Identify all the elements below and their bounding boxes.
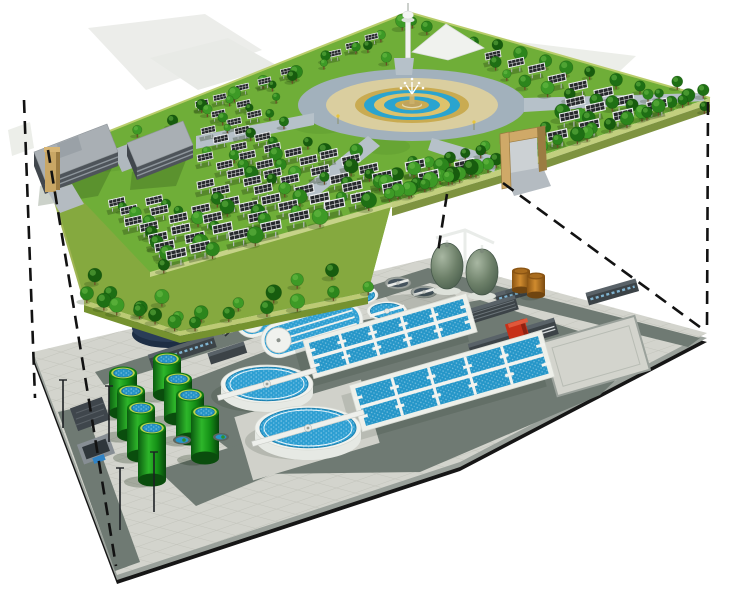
tower-top bbox=[403, 11, 414, 19]
tree-shadow bbox=[202, 255, 217, 260]
canopy-highlight bbox=[491, 57, 496, 62]
lamp-light bbox=[336, 114, 339, 117]
canopy-highlight bbox=[423, 22, 428, 27]
canopy-highlight bbox=[288, 72, 293, 77]
canopy-highlight bbox=[611, 75, 617, 81]
canopy-highlight bbox=[246, 167, 252, 173]
canopy-highlight bbox=[627, 100, 633, 106]
tree-shadow bbox=[145, 321, 159, 326]
tree-shadow bbox=[381, 199, 392, 203]
canopy-highlight bbox=[591, 95, 597, 101]
canopy-highlight bbox=[636, 82, 641, 87]
canopy-highlight bbox=[90, 270, 96, 276]
tree-shadow bbox=[130, 316, 143, 321]
canopy-highlight bbox=[337, 193, 342, 198]
tree-shadow bbox=[322, 276, 336, 281]
tree-shadow bbox=[601, 129, 613, 133]
canopy-highlight bbox=[667, 97, 672, 102]
canopy-highlight bbox=[170, 316, 176, 322]
canopy-highlight bbox=[363, 194, 370, 201]
canopy-highlight bbox=[364, 42, 368, 46]
tree-shadow bbox=[263, 118, 272, 121]
small-tank bbox=[213, 433, 229, 441]
tree-shadow bbox=[417, 189, 428, 193]
canopy-highlight bbox=[191, 318, 196, 323]
canopy-highlight bbox=[234, 299, 239, 304]
canopy-highlight bbox=[268, 286, 275, 293]
canopy-highlight bbox=[643, 108, 648, 113]
canopy-highlight bbox=[515, 48, 521, 54]
canopy-highlight bbox=[351, 145, 357, 151]
canopy-highlight bbox=[230, 88, 236, 94]
canopy-highlight bbox=[222, 201, 229, 208]
tree-shadow bbox=[418, 32, 430, 36]
scene-svg bbox=[0, 0, 740, 589]
canopy-highlight bbox=[321, 60, 324, 63]
canopy-highlight bbox=[267, 110, 271, 114]
canopy-highlight bbox=[203, 148, 207, 152]
canopy-highlight bbox=[329, 287, 334, 292]
canopy-highlight bbox=[656, 90, 660, 94]
projection-line-right-vertical bbox=[707, 102, 708, 329]
tree-shadow bbox=[549, 145, 560, 149]
canopy-highlight bbox=[106, 288, 112, 294]
canopy-highlight bbox=[477, 146, 482, 151]
tree-shadow bbox=[392, 27, 406, 32]
canopy-highlight bbox=[194, 236, 201, 243]
fountain-mist bbox=[400, 87, 403, 90]
gate-pillar-side bbox=[56, 152, 60, 190]
canopy-highlight bbox=[280, 118, 284, 122]
canopy-highlight bbox=[156, 291, 162, 297]
canopy-highlight bbox=[134, 126, 138, 130]
canopy-highlight bbox=[239, 160, 244, 165]
canopy-highlight bbox=[273, 94, 276, 97]
tree-shadow bbox=[277, 126, 287, 130]
canopy-highlight bbox=[343, 178, 348, 183]
canopy-highlight bbox=[421, 180, 426, 185]
canopy-highlight bbox=[385, 189, 390, 194]
path-north bbox=[394, 58, 414, 75]
canopy-highlight bbox=[444, 172, 449, 177]
canopy-highlight bbox=[446, 153, 451, 158]
canopy-highlight bbox=[98, 295, 104, 301]
tree-shadow bbox=[500, 78, 509, 81]
tree-shadow bbox=[675, 105, 685, 109]
tree-shadow bbox=[84, 281, 99, 286]
canopy-highlight bbox=[224, 308, 229, 313]
canopy-highlight bbox=[162, 200, 166, 204]
canopy-highlight bbox=[225, 125, 228, 128]
tree-shadow bbox=[361, 50, 371, 54]
canopy-highlight bbox=[269, 138, 273, 142]
canopy-highlight bbox=[259, 214, 265, 220]
canopy-highlight bbox=[150, 309, 156, 315]
canopy-highlight bbox=[213, 193, 219, 199]
canopy-highlight bbox=[253, 206, 259, 212]
canopy-highlight bbox=[392, 169, 398, 175]
canopy-highlight bbox=[290, 167, 296, 173]
canopy-highlight bbox=[653, 100, 659, 106]
canopy-highlight bbox=[82, 288, 88, 294]
tree-shadow bbox=[224, 104, 232, 107]
canopy-highlight bbox=[566, 89, 571, 94]
tree-shadow bbox=[76, 299, 90, 304]
canopy-highlight bbox=[322, 52, 326, 56]
tree-shadow bbox=[270, 101, 278, 104]
canopy-highlight bbox=[111, 299, 118, 306]
canopy-highlight bbox=[249, 228, 256, 235]
tree-shadow bbox=[164, 328, 178, 333]
canopy-highlight bbox=[465, 161, 472, 168]
canopy-highlight bbox=[364, 283, 369, 288]
tree-shadow bbox=[318, 67, 326, 70]
canopy-highlight bbox=[230, 151, 235, 156]
tree-shadow bbox=[215, 122, 225, 126]
water bbox=[216, 435, 227, 440]
canopy-highlight bbox=[135, 305, 140, 310]
tree-shadow bbox=[378, 62, 389, 66]
fountain-mist bbox=[422, 87, 425, 90]
tree-shadow bbox=[266, 89, 274, 92]
canopy-highlight bbox=[295, 191, 301, 197]
lamp-light bbox=[472, 120, 475, 123]
tree-shadow bbox=[537, 94, 551, 99]
canopy-highlight bbox=[607, 97, 613, 103]
canopy-highlight bbox=[204, 105, 208, 109]
canopy-highlight bbox=[584, 112, 590, 118]
canopy-highlight bbox=[520, 76, 525, 81]
canopy-highlight bbox=[262, 302, 268, 308]
tree-shadow bbox=[220, 319, 233, 324]
canopy-highlight bbox=[382, 53, 387, 58]
canopy-highlight bbox=[314, 210, 321, 217]
canopy-highlight bbox=[276, 160, 281, 165]
canopy-highlight bbox=[321, 173, 325, 177]
fountain-mist bbox=[404, 82, 407, 85]
canopy-highlight bbox=[557, 105, 564, 112]
tree-shadow bbox=[473, 155, 484, 159]
canopy-highlight bbox=[147, 227, 152, 232]
canopy-highlight bbox=[366, 170, 370, 174]
canopy-highlight bbox=[327, 265, 333, 271]
central-plaza bbox=[298, 69, 526, 141]
process-tank-dark bbox=[385, 277, 411, 289]
tree-shadow bbox=[694, 96, 706, 100]
canopy-highlight bbox=[119, 203, 123, 207]
canopy-highlight bbox=[292, 206, 297, 211]
canopy-highlight bbox=[271, 148, 277, 154]
canopy-highlight bbox=[353, 43, 357, 47]
tree-shadow bbox=[284, 81, 295, 85]
tree-shadow bbox=[130, 135, 140, 139]
water bbox=[176, 437, 189, 443]
gate-cap bbox=[44, 147, 60, 152]
tree-shadow bbox=[360, 292, 371, 296]
fountain-mist bbox=[418, 82, 421, 85]
tree-shadow bbox=[257, 313, 271, 318]
cutaway-illustration bbox=[0, 0, 740, 589]
canopy-highlight bbox=[561, 62, 567, 68]
tree-shadow bbox=[324, 298, 337, 303]
plant-building bbox=[585, 279, 639, 306]
canopy-highlight bbox=[409, 163, 415, 169]
tree-shadow bbox=[515, 87, 528, 92]
tree-shadow bbox=[616, 124, 630, 129]
tree-shadow bbox=[186, 328, 198, 332]
tree-shadow bbox=[349, 52, 359, 55]
canopy-highlight bbox=[247, 129, 252, 134]
canopy-highlight bbox=[152, 237, 158, 243]
canopy-highlight bbox=[292, 274, 298, 280]
tree-shadow bbox=[582, 77, 593, 81]
tree-shadow bbox=[301, 147, 311, 151]
canopy-highlight bbox=[644, 90, 649, 95]
tree-shadow bbox=[243, 138, 254, 142]
canopy-highlight bbox=[622, 113, 628, 119]
canopy-highlight bbox=[160, 260, 165, 265]
canopy-highlight bbox=[435, 159, 442, 166]
canopy-highlight bbox=[246, 104, 250, 108]
egg-digester bbox=[466, 249, 498, 295]
canopy-highlight bbox=[175, 207, 179, 211]
tree-shadow bbox=[697, 111, 707, 115]
canopy-highlight bbox=[462, 149, 466, 153]
canopy-highlight bbox=[227, 96, 230, 99]
canopy-highlight bbox=[492, 154, 497, 159]
canopy-highlight bbox=[219, 113, 223, 117]
tree-shadow bbox=[155, 270, 167, 274]
fountain-mist bbox=[411, 78, 414, 81]
canopy-highlight bbox=[193, 212, 199, 218]
canopy-highlight bbox=[393, 185, 399, 191]
canopy-highlight bbox=[699, 85, 704, 90]
canopy-highlight bbox=[292, 295, 299, 302]
canopy-highlight bbox=[701, 102, 705, 106]
canopy-highlight bbox=[483, 159, 488, 164]
canopy-highlight bbox=[606, 119, 611, 124]
canopy-highlight bbox=[425, 158, 430, 163]
canopy-highlight bbox=[144, 216, 150, 222]
canopy-highlight bbox=[280, 183, 285, 188]
canopy-highlight bbox=[679, 96, 683, 100]
canopy-highlight bbox=[270, 81, 273, 84]
gate-post bbox=[500, 132, 511, 189]
small-tank bbox=[173, 436, 191, 445]
tree-shadow bbox=[639, 117, 650, 121]
canopy-highlight bbox=[196, 307, 202, 313]
canopy-highlight bbox=[131, 208, 136, 213]
canopy-highlight bbox=[572, 128, 579, 135]
canopy-highlight bbox=[586, 67, 591, 72]
canopy-highlight bbox=[541, 56, 547, 62]
egg-digester bbox=[431, 243, 463, 289]
tree-shadow bbox=[669, 87, 681, 91]
canopy-highlight bbox=[380, 176, 387, 183]
ghost-block-4 bbox=[8, 122, 34, 156]
tree-shadow bbox=[200, 114, 210, 118]
canopy-highlight bbox=[673, 77, 678, 82]
canopy-highlight bbox=[268, 175, 273, 180]
tree-shadow bbox=[487, 67, 499, 71]
canopy-highlight bbox=[169, 116, 174, 121]
tree-shadow bbox=[362, 179, 372, 183]
canopy-highlight bbox=[346, 160, 352, 166]
tree-shadow bbox=[287, 285, 300, 290]
tree-shadow bbox=[440, 182, 452, 186]
canopy-highlight bbox=[304, 138, 308, 142]
canopy-highlight bbox=[207, 243, 213, 249]
canopy-highlight bbox=[554, 135, 559, 140]
canopy-highlight bbox=[493, 40, 498, 45]
canopy-highlight bbox=[543, 82, 549, 88]
canopy-highlight bbox=[320, 145, 326, 151]
tree-shadow bbox=[317, 182, 327, 186]
canopy-highlight bbox=[198, 100, 203, 105]
canopy-highlight bbox=[504, 70, 508, 74]
